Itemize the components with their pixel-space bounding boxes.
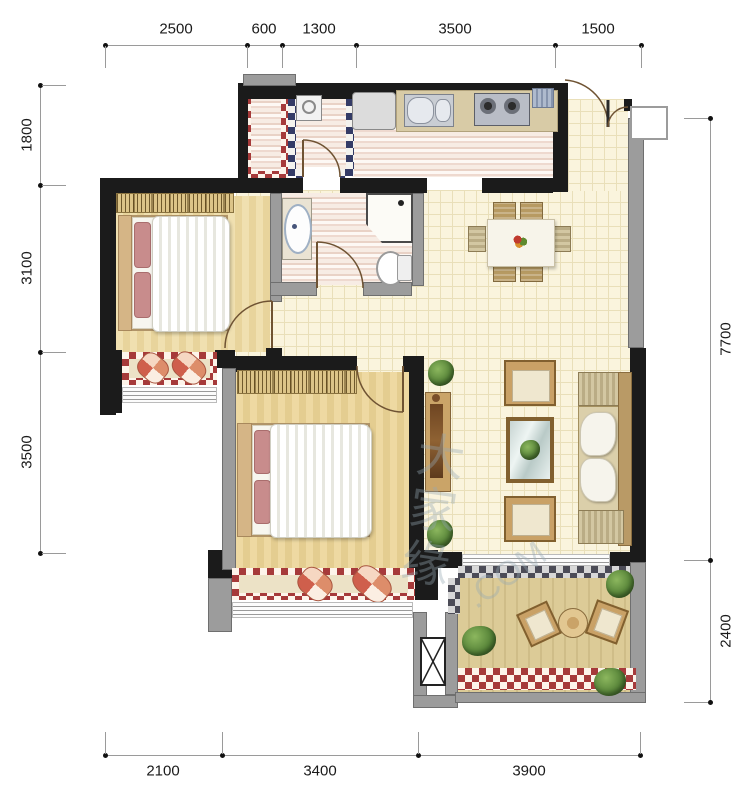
floor-plan-canvas: 2500 600 1300 3500 1500 2100 3400 3900 1… [0, 0, 750, 800]
bed2-headboard [237, 423, 252, 537]
tv-screen [430, 404, 443, 478]
bed1-pillow-1 [134, 222, 151, 268]
wall-band-a [100, 178, 303, 193]
burner-1-icon [480, 98, 496, 114]
dim-label: 2500 [159, 21, 192, 38]
entry-floor [568, 99, 628, 191]
bed1-duvet [152, 216, 230, 332]
wall-bay2-right-pier [415, 550, 438, 600]
dim-label: 3400 [303, 763, 336, 780]
toilet-tank [397, 255, 412, 281]
gwall-elevator-left [413, 612, 427, 708]
dim-label: 1300 [302, 21, 335, 38]
gwall-top-block [243, 74, 296, 86]
dim-label: 1800 [19, 118, 36, 151]
balcony-top-rail [458, 566, 630, 578]
dining-chair-top-2 [520, 202, 543, 220]
gwall-right-upper [628, 118, 644, 348]
dim-label: 3900 [512, 763, 545, 780]
armchair-bottom-cushion [512, 504, 550, 536]
gwall-elevator-right [445, 612, 458, 695]
faucet-icon [292, 224, 297, 229]
burner-2-icon [504, 98, 520, 114]
wardrobe-bedroom2 [237, 370, 357, 394]
gwall-bedroom2-left [222, 368, 236, 570]
dim-label: 3100 [19, 251, 36, 284]
wall-band-c [482, 178, 553, 193]
gwall-elevator-bottom [413, 695, 458, 708]
wall-bedroom2-right [409, 356, 424, 568]
bed2-pillow-2 [254, 480, 271, 524]
dim-label: 3500 [438, 21, 471, 38]
service-window-inner [251, 97, 281, 171]
dish-rack [532, 88, 554, 108]
gwall-bay2-left-L [208, 578, 232, 632]
bed2-pillow-1 [254, 430, 271, 474]
wall-band-b [340, 178, 427, 193]
dining-chair-left [468, 226, 486, 252]
dim-label: 1500 [581, 21, 614, 38]
bay2-window [232, 602, 413, 618]
laundry-wall-left [288, 92, 296, 176]
bathroom-sink [284, 204, 312, 254]
washer-drum-icon [302, 100, 316, 114]
fruit-bowl-icon [512, 234, 528, 248]
tv-knob-icon [432, 394, 440, 402]
gwall-bath-right [412, 193, 424, 286]
dim-label: 7700 [718, 322, 735, 355]
dim-label: 600 [251, 21, 276, 38]
sofa-pillow-2 [580, 458, 616, 502]
bed2-duvet [270, 424, 372, 538]
bed1-headboard [118, 215, 132, 331]
sofa-end-table-bottom [578, 510, 624, 544]
wall-hinge-stub [266, 348, 282, 372]
balcony-table [558, 608, 588, 638]
kitchen-sink-basin-1 [407, 97, 434, 124]
kitchen-sink-basin-2 [435, 99, 451, 122]
bed1-pillow-2 [134, 272, 151, 318]
balcony-slider [462, 554, 610, 566]
dining-chair-right [553, 226, 571, 252]
dim-label: 2400 [718, 614, 735, 647]
fridge [352, 92, 396, 130]
sofa-pillow-1 [580, 412, 616, 456]
gwall-bath-bottom-a [270, 282, 317, 296]
wall-bedroom1-left-pier [100, 350, 122, 413]
dim-label: 3500 [19, 435, 36, 468]
balcony-left-rail [448, 578, 460, 614]
wall-living-right [630, 348, 646, 566]
dining-chair-top-1 [493, 202, 516, 220]
dim-label: 2100 [146, 763, 179, 780]
wall-utility-left [238, 83, 248, 180]
entry-step [630, 106, 668, 140]
laundry-door-gap [303, 167, 340, 180]
shower-drain-icon [398, 200, 404, 206]
wardrobe-bedroom1 [116, 193, 234, 213]
bay1-window [122, 387, 217, 403]
armchair-top-cushion [512, 370, 550, 402]
